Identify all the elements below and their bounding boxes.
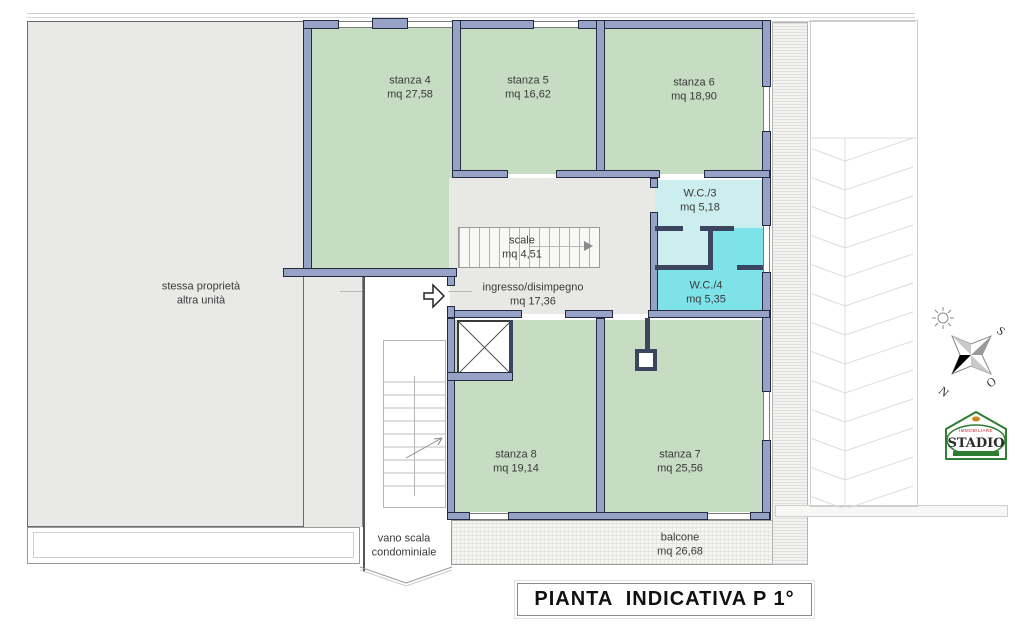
elevator-shaft [457, 320, 512, 375]
adjacent-property-label: stessa proprietà altra unità [162, 280, 240, 309]
room-label-stanza7: stanza 7 mq 25,56 [657, 448, 703, 477]
flue-box [635, 349, 657, 371]
room-area: mq 19,14 [493, 462, 539, 476]
room-area: mq 17,36 [483, 295, 584, 309]
room-name: stanza 4 [387, 74, 433, 88]
room-name: stanza 5 [505, 74, 551, 88]
balcony-area [451, 520, 790, 565]
window [763, 87, 770, 131]
wall-segment [303, 20, 312, 276]
entrance-arrow-icon [422, 283, 446, 309]
wall-segment [762, 131, 771, 226]
wall-segment [508, 512, 708, 520]
room-area: mq 18,90 [671, 90, 717, 104]
wall-segment [596, 318, 605, 514]
room-label-stanza5: stanza 5 mq 16,62 [505, 74, 551, 103]
logo-snail-icon [972, 417, 980, 422]
room-area: mq 5,18 [680, 201, 720, 215]
floor-plan-canvas: stanza 4 mq 27,58 stanza 5 mq 16,62 stan… [0, 0, 1024, 637]
adjacent-property-area [27, 21, 304, 527]
stairwell-chamfer [357, 566, 455, 590]
room-label-ingresso: ingresso/disimpegno mq 17,36 [483, 281, 584, 310]
room-stanza4-fill [307, 24, 455, 272]
compass-rose-icon: S O N [928, 302, 1012, 400]
logo-top-text: IMMOBILIARE [959, 428, 993, 433]
window [339, 21, 372, 28]
room-name: balcone [657, 531, 703, 545]
wall-segment [447, 276, 455, 286]
wall-segment [447, 512, 470, 520]
wall-segment [556, 170, 660, 178]
wc-partition [655, 265, 711, 270]
wall-segment [283, 268, 457, 277]
window [470, 513, 508, 520]
wall-segment [762, 20, 771, 87]
room-area: mq 16,62 [505, 88, 551, 102]
room-label-wc4: W.C./4 mq 5,35 [686, 279, 726, 308]
room-area: mq 5,35 [686, 293, 726, 307]
wall-segment [452, 170, 508, 178]
entry-line-right [448, 291, 472, 292]
window [534, 21, 578, 28]
flue-stub [645, 318, 650, 351]
wc4-fill-top [711, 228, 765, 268]
wall-segment [578, 20, 770, 29]
plan-title-box: PIANTA INDICATIVA P 1° [517, 583, 812, 616]
adjacent-balcony-inner-line [33, 532, 354, 558]
adjacent-balcony-strip [27, 527, 360, 564]
adjacent-property-line1: stessa proprietà [162, 280, 240, 294]
compass-west-label: O [984, 374, 999, 391]
wc-partition [700, 226, 734, 231]
wall-segment [452, 20, 461, 178]
room-name: ingresso/disimpegno [483, 281, 584, 295]
room-label-stanza6: stanza 6 mq 18,90 [671, 76, 717, 105]
wall-segment [447, 310, 522, 318]
wall-segment [565, 310, 613, 318]
window [763, 226, 770, 272]
wall-segment [762, 440, 771, 520]
compass-south-label: S [994, 323, 1008, 338]
window [763, 392, 770, 440]
room-name: stanza 8 [493, 448, 539, 462]
wall-segment [762, 272, 771, 392]
wc-partition [708, 226, 713, 270]
room-area: mq 4,51 [502, 248, 542, 262]
room-name: stanza 6 [671, 76, 717, 90]
wall-segment [447, 372, 513, 381]
plan-title: PIANTA INDICATIVA P 1° [534, 588, 794, 611]
stairwell-line2: condominiale [372, 546, 437, 560]
window [708, 513, 750, 520]
elevator-right-wall [509, 320, 513, 374]
room-name: stanza 7 [657, 448, 703, 462]
room-label-stanza8: stanza 8 mq 19,14 [493, 448, 539, 477]
wall-segment [447, 306, 455, 318]
agency-logo: IMMOBILIARE STADIO [940, 408, 1012, 462]
adjacent-property-area-ext [304, 277, 363, 527]
stairwell-line1: vano scala [372, 532, 437, 546]
wall-segment [704, 170, 770, 178]
wall-segment [596, 20, 605, 178]
room-stanza7-fill [601, 320, 766, 512]
stairs-direction-arrow-icon [584, 241, 593, 251]
room-name: scale [502, 234, 542, 248]
stairwell-label: vano scala condominiale [372, 532, 437, 561]
room-area: mq 27,58 [387, 88, 433, 102]
sun-icon [932, 307, 954, 329]
exterior-wall-hatch [772, 22, 808, 565]
adjacent-property-line2: altra unità [162, 294, 240, 308]
elevator-x-icon [459, 322, 510, 373]
room-label-stanza4: stanza 4 mq 27,58 [387, 74, 433, 103]
wall-segment [650, 178, 658, 188]
room-label-scale: scale mq 4,51 [502, 234, 542, 263]
wall-segment [452, 20, 534, 29]
room-area: mq 25,56 [657, 462, 703, 476]
room-name: W.C./4 [686, 279, 726, 293]
entry-line-left [340, 291, 362, 292]
wall-segment [750, 512, 770, 520]
logo-name: STADIO [947, 436, 1004, 451]
condo-stairs-icon [378, 336, 450, 512]
wall-segment [372, 18, 408, 29]
wc-partition [655, 226, 683, 231]
compass-north-label: N [936, 384, 952, 400]
wall-segment [648, 310, 770, 318]
room-area: mq 26,68 [657, 545, 703, 559]
room-label-balcone: balcone mq 26,68 [657, 531, 703, 560]
wc-partition [737, 265, 763, 270]
roof-plan-chevrons [805, 18, 920, 508]
wall-segment [303, 20, 339, 29]
room-label-wc3: W.C./3 mq 5,18 [680, 187, 720, 216]
room-name: W.C./3 [680, 187, 720, 201]
window [408, 21, 452, 28]
